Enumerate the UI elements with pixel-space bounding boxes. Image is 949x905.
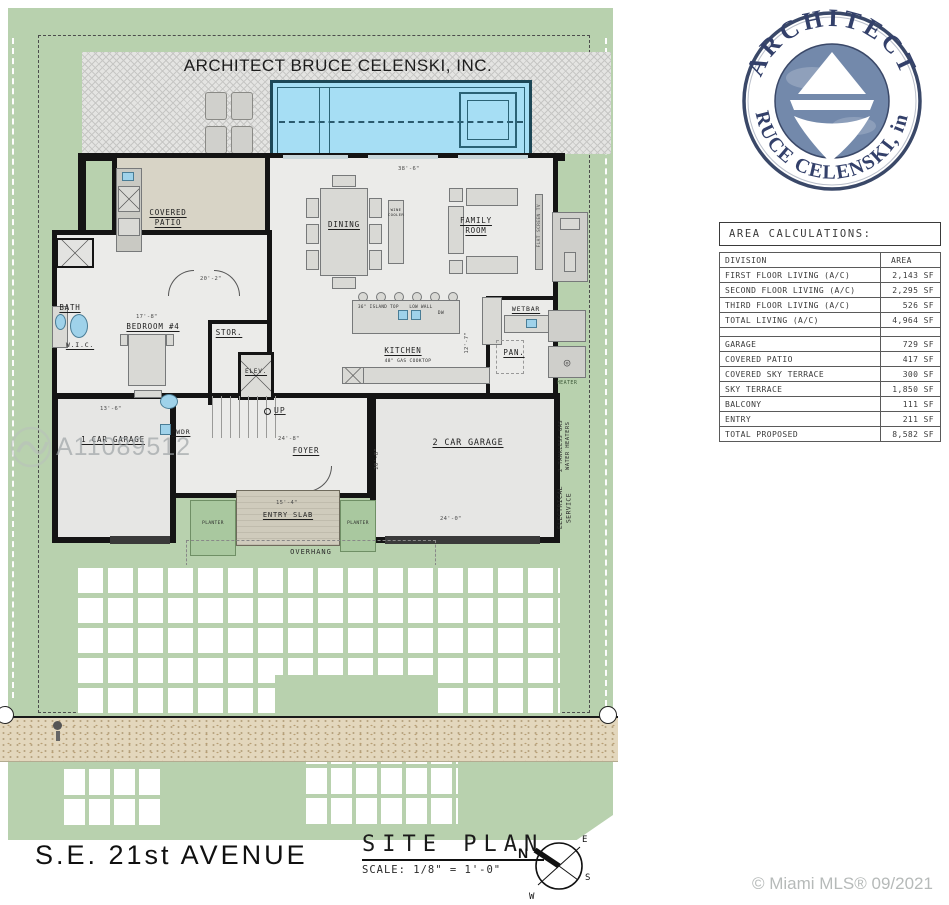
dimension: 24'-8"	[278, 436, 300, 442]
division-cell: TOTAL LIVING (A/C)	[720, 313, 881, 328]
division-cell: FIRST FLOOR LIVING (A/C)	[720, 268, 881, 283]
area-cell: 300 SF	[881, 367, 941, 382]
pool-line	[319, 88, 320, 154]
dimension: 15'-4"	[276, 500, 298, 506]
street-label: S.E. 21st AVENUE	[35, 840, 308, 871]
table-row: SKY TERRACE1,850 SF	[720, 382, 941, 397]
table-row: FIRST FLOOR LIVING (A/C)2,143 SF	[720, 268, 941, 283]
pool-heater-unit: ◎	[548, 346, 586, 378]
table-header-row: DIVISION AREA	[720, 253, 941, 268]
swimming-pool	[270, 80, 532, 162]
area-cell: 4,964 SF	[881, 313, 941, 328]
mls-watermark: A11089512	[8, 424, 191, 470]
overhang-outline: OVERHANG	[186, 540, 436, 566]
division-cell: SKY TERRACE	[720, 382, 881, 397]
equipment-unit	[564, 252, 576, 272]
kitchen-counter	[342, 367, 490, 384]
note-island-top: 36" ISLAND TOP	[358, 304, 410, 309]
room-label-garage2: 2 CAR GARAGE	[413, 438, 523, 449]
chair	[369, 250, 382, 270]
window	[368, 155, 438, 159]
division-cell: GARAGE	[720, 337, 881, 352]
area-cell	[881, 328, 941, 337]
room-label-covered-patio: COVERED PATIO	[128, 208, 208, 228]
division-cell: ENTRY	[720, 412, 881, 427]
chair	[332, 175, 356, 187]
road-swale	[0, 716, 618, 762]
sink	[526, 319, 537, 328]
pool-line	[329, 88, 330, 154]
division-cell: SECOND FLOOR LIVING (A/C)	[720, 283, 881, 298]
area-calculations-panel: AREA CALCULATIONS: DIVISION AREA FIRST F…	[719, 222, 941, 442]
mls-number: A11089512	[56, 433, 191, 462]
paver-driveway	[78, 565, 560, 713]
room-label-family-room: FAMILY ROOM	[446, 216, 506, 236]
area-cell: 2,295 SF	[881, 283, 941, 298]
bed	[128, 334, 166, 386]
area-cell: 211 SF	[881, 412, 941, 427]
table-row: TOTAL PROPOSED8,582 SF	[720, 427, 941, 442]
compass-n: N	[518, 845, 528, 861]
stairs	[212, 396, 282, 438]
table-row: COVERED SKY TERRACE300 SF	[720, 367, 941, 382]
side-table	[449, 188, 463, 202]
compass-rose: N E S W	[512, 830, 596, 902]
table-row: SECOND FLOOR LIVING (A/C)2,295 SF	[720, 283, 941, 298]
up-label-group: UP	[264, 406, 286, 416]
header-division: DIVISION	[720, 253, 881, 268]
architect-banner: ARCHITECT BRUCE CELENSKI, INC.	[158, 56, 518, 76]
division-cell: BALCONY	[720, 397, 881, 412]
spa	[459, 92, 517, 148]
room-label-dining: DINING	[313, 220, 375, 230]
label-up: UP	[274, 406, 286, 416]
note-low-wall: LOW WALL	[406, 304, 436, 309]
table-row	[720, 328, 941, 337]
dimension: 24'-0"	[440, 516, 462, 522]
mls-swirl-icon	[8, 424, 54, 470]
driveway-lawn-gap	[275, 675, 438, 713]
stair-marker-icon	[264, 408, 271, 415]
hydrant-symbol	[53, 721, 62, 730]
lounge-chair	[205, 126, 227, 154]
lounge-chair	[231, 92, 253, 120]
room-label-wic: W.I.C.	[56, 341, 104, 349]
division-cell: TOTAL PROPOSED	[720, 427, 881, 442]
label-heater: HEATER	[548, 380, 586, 387]
area-table-body: DIVISION AREA FIRST FLOOR LIVING (A/C)2,…	[720, 253, 941, 442]
architect-logo: ARCHITECT BRUCE CELENSKI, inc.	[720, 4, 945, 202]
dimension: 20'-8"	[374, 448, 380, 470]
note-dishwasher: DW	[433, 311, 449, 317]
note-wine-cooler: WINE COOLER	[388, 208, 404, 218]
chair	[306, 250, 319, 270]
sofa	[466, 256, 518, 274]
range	[342, 367, 364, 384]
room-label-elevator: ELEV.	[236, 368, 276, 376]
site-plan-sheet: ARCHITECT BRUCE CELENSKI, INC.	[0, 0, 949, 905]
dimension: 20'-2"	[200, 276, 222, 282]
toilet	[160, 394, 178, 409]
paver-walk	[306, 762, 458, 824]
area-cell: 417 SF	[881, 352, 941, 367]
label-entry-slab: ENTRY SLAB	[240, 511, 336, 520]
pool-heater-unit	[548, 310, 586, 342]
side-table	[449, 260, 463, 274]
room-label-pantry: PAN.	[496, 348, 532, 358]
outdoor-sink	[122, 172, 134, 181]
dining-table	[320, 188, 368, 276]
sink	[398, 310, 408, 320]
sink	[55, 314, 66, 330]
compass-w: W	[529, 892, 535, 902]
note-cooktop: 48" GAS COOKTOP	[376, 359, 440, 365]
spa-inner-line	[467, 100, 509, 140]
division-cell	[720, 328, 881, 337]
sofa	[466, 188, 518, 206]
refrigerator	[482, 297, 502, 345]
paver-walk	[64, 765, 164, 825]
nightstand	[120, 334, 128, 346]
window	[458, 155, 528, 159]
area-cell: 111 SF	[881, 397, 941, 412]
sink	[411, 310, 421, 320]
toilet	[70, 314, 88, 338]
chair	[369, 198, 382, 218]
room-label-wetbar: WETBAR	[500, 305, 552, 313]
window	[283, 155, 348, 159]
area-table-title: AREA CALCULATIONS:	[719, 222, 941, 246]
area-cell: 526 SF	[881, 298, 941, 313]
table-row: TOTAL LIVING (A/C)4,964 SF	[720, 313, 941, 328]
lounge-chair	[205, 92, 227, 120]
lounge-chair	[231, 126, 253, 154]
dimension: 17'-8"	[136, 314, 158, 320]
chair	[306, 198, 319, 218]
elevator-shaft	[238, 352, 274, 400]
division-cell: COVERED SKY TERRACE	[720, 367, 881, 382]
nightstand	[166, 334, 174, 346]
header-area: AREA	[881, 253, 941, 268]
property-line-left	[12, 38, 14, 698]
label-planter: PLANTER	[340, 521, 376, 527]
garage-door	[110, 536, 170, 544]
area-cell: 1,850 SF	[881, 382, 941, 397]
dimension: 13'-6"	[100, 406, 122, 412]
hydrant-symbol	[56, 731, 60, 741]
note-flat-tv: FLAT SCREEN TV	[537, 204, 543, 248]
overhang-label: OVERHANG	[290, 548, 332, 557]
room-label-foyer: FOYER	[276, 446, 336, 456]
dimension: 12'-7"	[464, 332, 470, 354]
area-cell: 8,582 SF	[881, 427, 941, 442]
note-electrical: ELECTRICAL SERVICE	[556, 486, 573, 529]
area-table: DIVISION AREA FIRST FLOOR LIVING (A/C)2,…	[719, 252, 941, 442]
table-row: GARAGE729 SF	[720, 337, 941, 352]
compass-s: S	[585, 873, 590, 883]
division-cell: COVERED PATIO	[720, 352, 881, 367]
shower	[56, 238, 94, 268]
wall-segment	[208, 320, 272, 324]
survey-marker	[599, 706, 617, 724]
area-cell: 2,143 SF	[881, 268, 941, 283]
bench	[134, 390, 162, 398]
table-row: COVERED PATIO417 SF	[720, 352, 941, 367]
room-label-bath: BATH	[46, 303, 94, 313]
division-cell: THIRD FLOOR LIVING (A/C)	[720, 298, 881, 313]
room-label-kitchen: KITCHEN	[368, 346, 438, 356]
table-row: BALCONY111 SF	[720, 397, 941, 412]
chair	[332, 277, 356, 289]
label-planter: PLANTER	[194, 521, 232, 527]
compass-e: E	[582, 835, 587, 845]
note-tankless: 2 TANKLESS GAS WATER HEATERS	[558, 420, 572, 472]
equipment-unit	[560, 218, 580, 230]
room-label-bedroom4: BEDROOM #4	[108, 322, 198, 332]
garage2-floor	[370, 393, 560, 543]
area-cell: 729 SF	[881, 337, 941, 352]
table-row: ENTRY211 SF	[720, 412, 941, 427]
mls-credit: © Miami MLS® 09/2021	[752, 874, 933, 894]
room-label-storage: STOR.	[206, 328, 252, 338]
dimension: 38'-6"	[398, 166, 420, 172]
table-row: THIRD FLOOR LIVING (A/C)526 SF	[720, 298, 941, 313]
